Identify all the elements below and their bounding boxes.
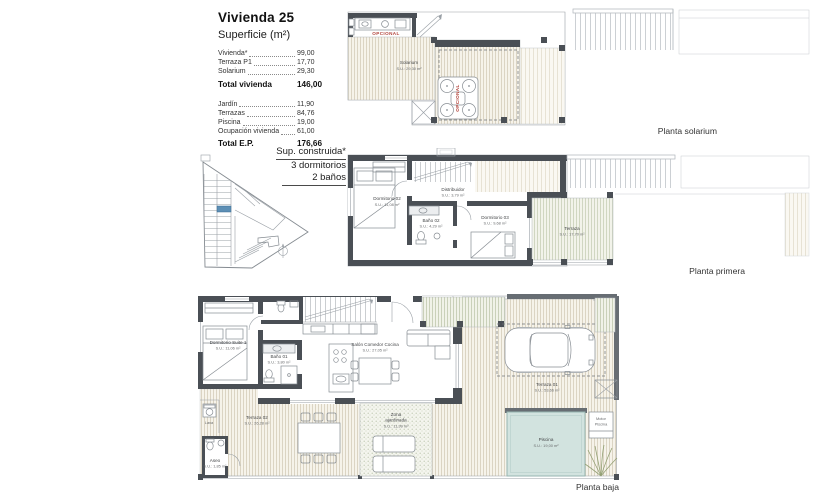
optional-kitchen: OPCIONAL: [348, 13, 417, 37]
row-value: 99,00: [297, 49, 330, 58]
plan-baja: Dormitorio Suite 1 S.U.: 11,06 m² Baño 0…: [195, 288, 625, 492]
room-name: Motor: [596, 416, 607, 421]
surface-subtitle: Superficie (m²): [218, 29, 330, 41]
room-area: S.U.: 3,79 m²: [442, 193, 466, 198]
row-label: Solarium: [218, 67, 246, 76]
room-name: Dormitorio 03: [481, 215, 509, 220]
spacer: [218, 90, 330, 100]
highlighted-parcel: [217, 206, 231, 212]
plan-caption: Planta solarium: [658, 126, 717, 136]
jacuzzi: OPCIONAL: [438, 77, 478, 119]
room-area: S.U.: 29,30 m²: [396, 66, 422, 71]
pergola-beam: [435, 40, 520, 47]
surface-panel: Vivienda 25 Superficie (m²) Vivienda* 99…: [218, 10, 330, 149]
room-area: S.U.: 26,28 m²: [244, 421, 270, 426]
room-name: Dormitorio 02: [373, 196, 401, 201]
bed-suite: [203, 326, 247, 380]
row-label: Piscina: [218, 118, 241, 127]
side-deck: [520, 48, 565, 124]
dotted-leader: [249, 56, 295, 57]
room-area: S.U.: 27,05 m²: [362, 348, 388, 353]
room-name: Aseo: [210, 458, 221, 463]
row-label: Vivienda*: [218, 49, 247, 58]
stairs: [303, 297, 377, 322]
page-title: Vivienda 25: [218, 10, 330, 25]
surface-row: Piscina 19,00: [218, 118, 330, 127]
room-name: Piscina: [539, 437, 554, 442]
room-area: S.U.: 4,29 m²: [420, 224, 444, 229]
floorplan-sheet: Vivienda 25 Superficie (m²) Vivienda* 99…: [0, 0, 819, 492]
plan-primera: Dormitorio 02 S.U.: 11,08 m² Distribuido…: [345, 148, 815, 280]
room-area: S.U.: 11,99 m²: [384, 424, 409, 429]
row-label: Terrazas: [218, 109, 245, 118]
row-label: Terraza P1: [218, 58, 252, 67]
row-label: Ocupación vivienda: [218, 127, 279, 136]
room-name: Distribuidor: [441, 187, 465, 192]
row-value: 84,76: [297, 109, 330, 118]
stairs: [417, 14, 442, 37]
entry-pergola: [420, 297, 505, 327]
room-area: S.U.: 3,80 m²: [268, 360, 292, 365]
row-label: Jardín: [218, 100, 237, 109]
surface-row: Jardín 11,90: [218, 100, 330, 109]
room-area: S.U.: 19,00 m²: [533, 443, 559, 448]
row-value: 17,70: [297, 58, 330, 67]
car: [505, 326, 595, 375]
room-name: Lava: [205, 420, 214, 425]
bed-dorm03: [471, 232, 515, 258]
dotted-leader: [243, 125, 295, 126]
surface-row: Vivienda* 99,00: [218, 49, 330, 58]
room-name: Zona: [391, 412, 402, 417]
plan-caption: Planta primera: [689, 266, 745, 276]
solarium-deck: [348, 37, 435, 100]
room-name: Baño 02: [422, 218, 440, 223]
door-arc: [457, 206, 471, 220]
surface-row: Ocupación vivienda 61,00: [218, 127, 330, 136]
room-area: S.U.: 9,68 m²: [484, 221, 508, 226]
surface-row: Terraza P1 17,70: [218, 58, 330, 67]
room-name: Terraza: [564, 226, 580, 231]
room-name: Terraza 02: [246, 415, 268, 420]
room-area: S.U.: 53,66 m²: [534, 388, 560, 393]
surface-row: Terrazas 84,76: [218, 109, 330, 118]
dotted-leader: [254, 65, 295, 66]
site-key-plan: [195, 150, 325, 292]
dotted-leader: [247, 116, 295, 117]
room-area: S.U.: 1,85 m²: [204, 464, 228, 469]
total-label: Total vivienda: [218, 79, 297, 90]
room-name: ajardinada: [385, 418, 407, 423]
room-name: Solarium: [400, 60, 418, 65]
room-area: S.U.: 11,08 m²: [375, 202, 400, 207]
optional-kitchen-label: OPCIONAL: [372, 31, 399, 36]
stairs: [414, 162, 473, 182]
room-name: Salón Comedor Cocina: [351, 342, 399, 347]
total-value: 146,00: [297, 79, 330, 90]
room-area: S.U.: 11,06 m²: [216, 346, 241, 351]
room-area: S.U.: 17,70 m²: [559, 232, 585, 237]
surface-row: Solarium 29,30: [218, 67, 330, 76]
room-name: Terraza 01: [536, 382, 558, 387]
optional-jacuzzi-label: OPCIONAL: [455, 84, 460, 111]
room-name: Baño 01: [270, 354, 288, 359]
dotted-leader: [281, 134, 295, 135]
pergola-comb: [573, 9, 809, 54]
plan-solarium: OPCIONAL OPCIONAL: [345, 4, 815, 140]
row-value: 19,00: [297, 118, 330, 127]
plan-caption: Planta baja: [576, 482, 619, 492]
row-value: 61,00: [297, 127, 330, 136]
room-name: Piscina: [595, 422, 608, 427]
dotted-leader: [239, 106, 295, 107]
row-value: 11,90: [297, 100, 330, 109]
room-name: Dormitorio Suite 1: [210, 340, 247, 345]
void-deck: [475, 161, 560, 192]
dotted-leader: [248, 74, 295, 75]
site-detail: [201, 155, 210, 161]
row-value: 29,30: [297, 67, 330, 76]
total-vivienda-row: Total vivienda 146,00: [218, 79, 330, 90]
pool: [505, 408, 587, 476]
